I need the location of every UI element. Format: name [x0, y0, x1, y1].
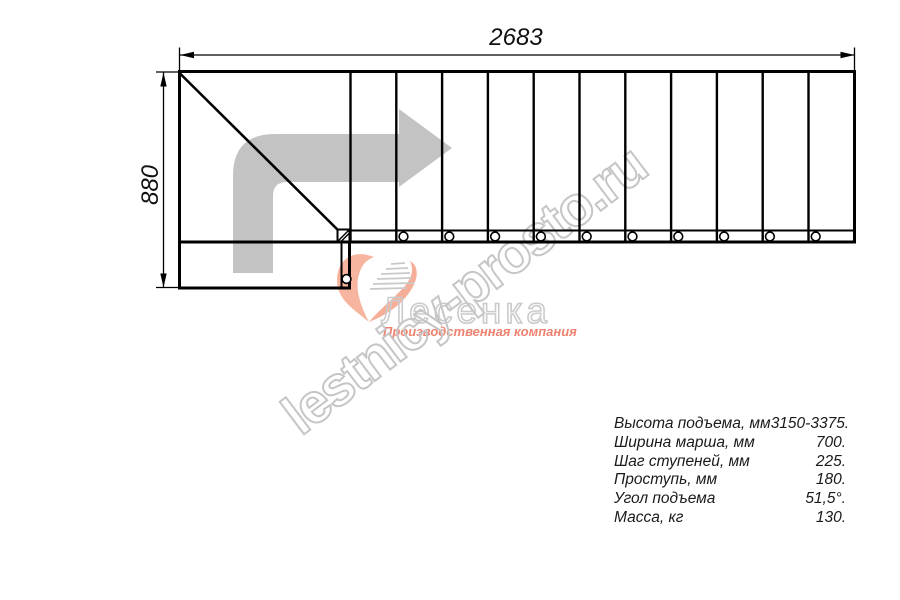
spec-row: Шаг ступеней, мм 225. — [614, 453, 846, 472]
spec-label: Проступь, мм — [614, 471, 717, 490]
spec-table: Высота подъема, мм 3150-3375. Ширина мар… — [614, 415, 846, 528]
spec-value: 180. — [816, 471, 846, 490]
spec-row: Ширина марша, мм 700. — [614, 434, 846, 453]
spec-value: 130. — [816, 509, 846, 528]
spec-row: Проступь, мм 180. — [614, 471, 846, 490]
spec-row: Угол подъема 51,5°. — [614, 490, 846, 509]
stringer-strip — [342, 230, 855, 289]
dimension-height-label: 880 — [137, 85, 165, 285]
spec-label: Шаг ступеней, мм — [614, 453, 750, 472]
spec-value: 700. — [816, 434, 846, 453]
spec-row: Масса, кг 130. — [614, 509, 846, 528]
spec-label: Масса, кг — [614, 509, 683, 528]
spec-label: Высота подъема, мм — [614, 415, 771, 434]
spec-row: Высота подъема, мм 3150-3375. — [614, 415, 846, 434]
spec-value: 3150-3375. — [771, 415, 849, 434]
dimension-width-label: 2683 — [416, 24, 616, 52]
spec-value: 51,5°. — [805, 490, 846, 509]
spec-label: Угол подъема — [614, 490, 715, 509]
post-hatched-square — [338, 230, 350, 242]
spec-label: Ширина марша, мм — [614, 434, 755, 453]
fastener-circles — [342, 232, 820, 283]
technical-drawing-page: lestnicy-prosto.ru Лесенка Производствен… — [0, 0, 900, 600]
spec-value: 225. — [816, 453, 846, 472]
